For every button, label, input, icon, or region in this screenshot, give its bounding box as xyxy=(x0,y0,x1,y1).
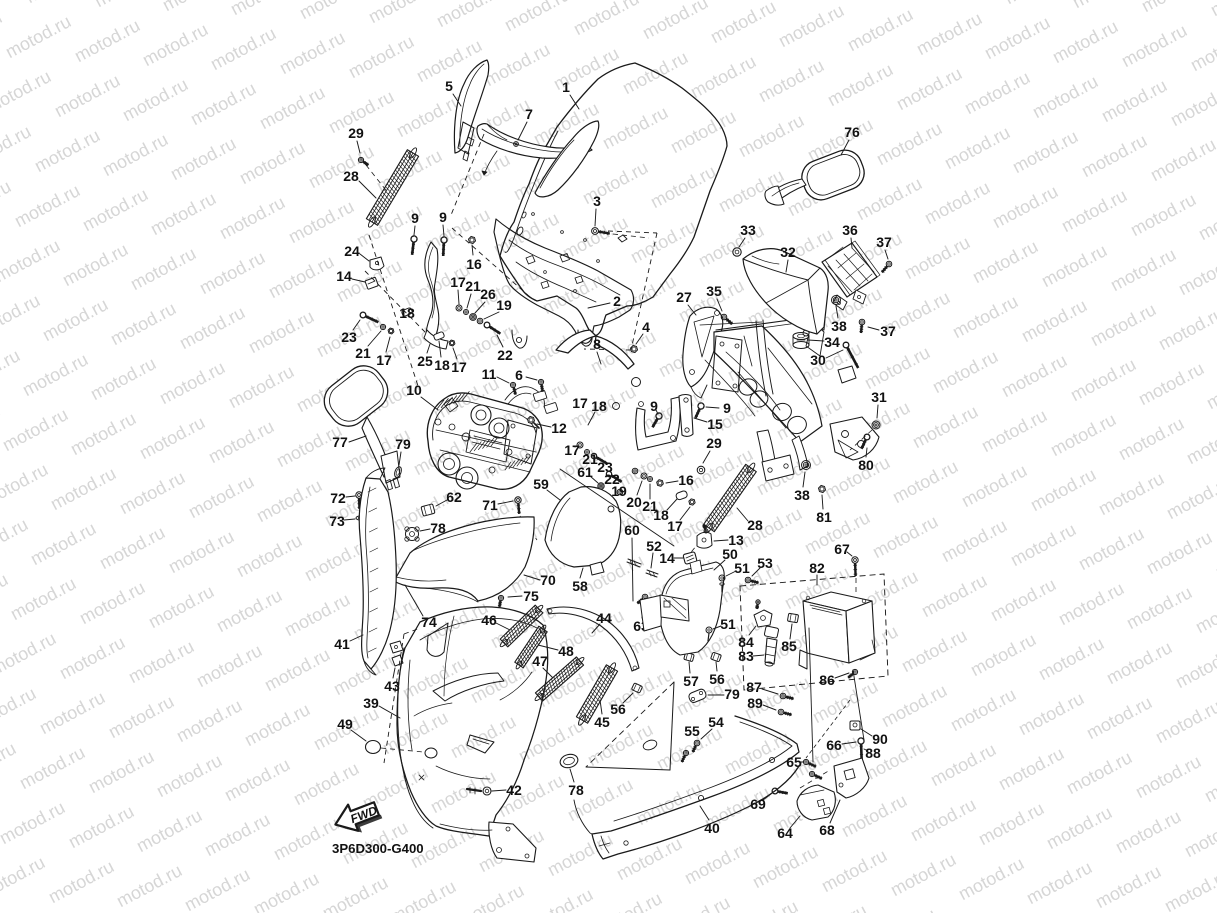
svg-text:17: 17 xyxy=(572,395,588,411)
svg-text:88: 88 xyxy=(865,745,881,761)
svg-text:3P6D300-G400: 3P6D300-G400 xyxy=(332,841,424,856)
svg-text:18: 18 xyxy=(591,398,607,414)
svg-text:16: 16 xyxy=(678,472,694,488)
svg-text:79: 79 xyxy=(395,436,411,452)
svg-text:31: 31 xyxy=(871,389,887,405)
svg-text:79: 79 xyxy=(724,686,740,702)
svg-text:17: 17 xyxy=(451,359,467,375)
svg-text:23: 23 xyxy=(341,329,357,345)
svg-text:3: 3 xyxy=(593,193,601,209)
svg-text:1: 1 xyxy=(562,79,570,95)
svg-text:19: 19 xyxy=(496,297,512,313)
svg-text:17: 17 xyxy=(450,274,466,290)
svg-text:62: 62 xyxy=(446,489,462,505)
svg-text:6: 6 xyxy=(515,367,523,383)
svg-text:68: 68 xyxy=(819,822,835,838)
svg-text:52: 52 xyxy=(646,538,662,554)
svg-text:56: 56 xyxy=(709,671,725,687)
svg-text:86: 86 xyxy=(819,672,835,688)
svg-text:40: 40 xyxy=(704,820,720,836)
svg-text:38: 38 xyxy=(831,318,847,334)
svg-text:9: 9 xyxy=(723,400,731,416)
svg-text:10: 10 xyxy=(406,382,422,398)
svg-text:56: 56 xyxy=(610,701,626,717)
svg-text:29: 29 xyxy=(348,125,364,141)
svg-text:21: 21 xyxy=(355,345,371,361)
svg-text:5: 5 xyxy=(445,78,453,94)
svg-text:59: 59 xyxy=(533,476,549,492)
svg-text:84: 84 xyxy=(738,634,754,650)
svg-text:18: 18 xyxy=(434,357,450,373)
svg-text:76: 76 xyxy=(844,124,860,140)
svg-text:45: 45 xyxy=(594,714,610,730)
svg-text:73: 73 xyxy=(329,513,345,529)
svg-text:55: 55 xyxy=(684,723,700,739)
svg-text:34: 34 xyxy=(824,334,840,350)
svg-text:44: 44 xyxy=(596,610,612,626)
svg-text:17: 17 xyxy=(564,442,580,458)
svg-text:72: 72 xyxy=(330,490,346,506)
svg-text:14: 14 xyxy=(336,268,352,284)
svg-text:28: 28 xyxy=(343,168,359,184)
svg-text:87: 87 xyxy=(746,679,762,695)
svg-text:57: 57 xyxy=(683,673,699,689)
svg-text:28: 28 xyxy=(747,517,763,533)
svg-text:89: 89 xyxy=(747,695,763,711)
svg-text:85: 85 xyxy=(781,638,797,654)
svg-text:2: 2 xyxy=(613,293,621,309)
svg-text:12: 12 xyxy=(551,420,567,436)
svg-text:49: 49 xyxy=(337,716,353,732)
svg-text:39: 39 xyxy=(363,695,379,711)
svg-text:78: 78 xyxy=(568,782,584,798)
svg-text:11: 11 xyxy=(482,366,497,382)
svg-text:9: 9 xyxy=(439,209,447,225)
svg-text:32: 32 xyxy=(780,244,796,260)
svg-text:7: 7 xyxy=(525,106,533,122)
svg-text:25: 25 xyxy=(417,353,433,369)
svg-text:33: 33 xyxy=(740,222,756,238)
svg-text:38: 38 xyxy=(794,487,810,503)
svg-text:27: 27 xyxy=(676,289,692,305)
svg-text:18: 18 xyxy=(399,305,415,321)
svg-text:67: 67 xyxy=(834,541,850,557)
svg-text:8: 8 xyxy=(593,336,601,352)
svg-text:78: 78 xyxy=(430,520,446,536)
svg-text:54: 54 xyxy=(708,714,724,730)
svg-text:37: 37 xyxy=(876,234,892,250)
svg-text:42: 42 xyxy=(506,782,522,798)
svg-text:81: 81 xyxy=(816,509,832,525)
svg-text:46: 46 xyxy=(481,612,497,628)
svg-text:30: 30 xyxy=(810,352,826,368)
svg-text:36: 36 xyxy=(842,222,858,238)
svg-text:19: 19 xyxy=(611,483,627,499)
svg-text:69: 69 xyxy=(750,796,766,812)
svg-text:41: 41 xyxy=(334,636,350,652)
svg-text:61: 61 xyxy=(577,464,593,480)
svg-text:51: 51 xyxy=(734,560,750,576)
svg-text:82: 82 xyxy=(809,560,825,576)
svg-text:15: 15 xyxy=(707,416,723,432)
svg-text:83: 83 xyxy=(738,648,754,664)
svg-text:71: 71 xyxy=(482,497,498,513)
svg-text:58: 58 xyxy=(572,578,588,594)
svg-text:70: 70 xyxy=(540,572,556,588)
svg-text:20: 20 xyxy=(626,494,642,510)
svg-text:35: 35 xyxy=(706,283,722,299)
svg-text:80: 80 xyxy=(858,457,874,473)
svg-text:21: 21 xyxy=(465,278,481,294)
svg-text:17: 17 xyxy=(667,518,683,534)
svg-text:75: 75 xyxy=(523,588,539,604)
svg-text:22: 22 xyxy=(497,347,513,363)
svg-text:29: 29 xyxy=(706,435,722,451)
svg-text:4: 4 xyxy=(642,319,650,335)
svg-text:47: 47 xyxy=(532,653,548,669)
svg-text:77: 77 xyxy=(332,434,348,450)
svg-text:17: 17 xyxy=(376,352,392,368)
svg-text:24: 24 xyxy=(344,243,360,259)
svg-text:37: 37 xyxy=(880,323,896,339)
svg-text:16: 16 xyxy=(466,256,482,272)
svg-text:26: 26 xyxy=(480,286,496,302)
svg-text:48: 48 xyxy=(558,643,574,659)
svg-text:66: 66 xyxy=(826,737,842,753)
svg-text:9: 9 xyxy=(411,210,419,226)
svg-text:60: 60 xyxy=(624,522,640,538)
svg-text:51: 51 xyxy=(720,616,736,632)
